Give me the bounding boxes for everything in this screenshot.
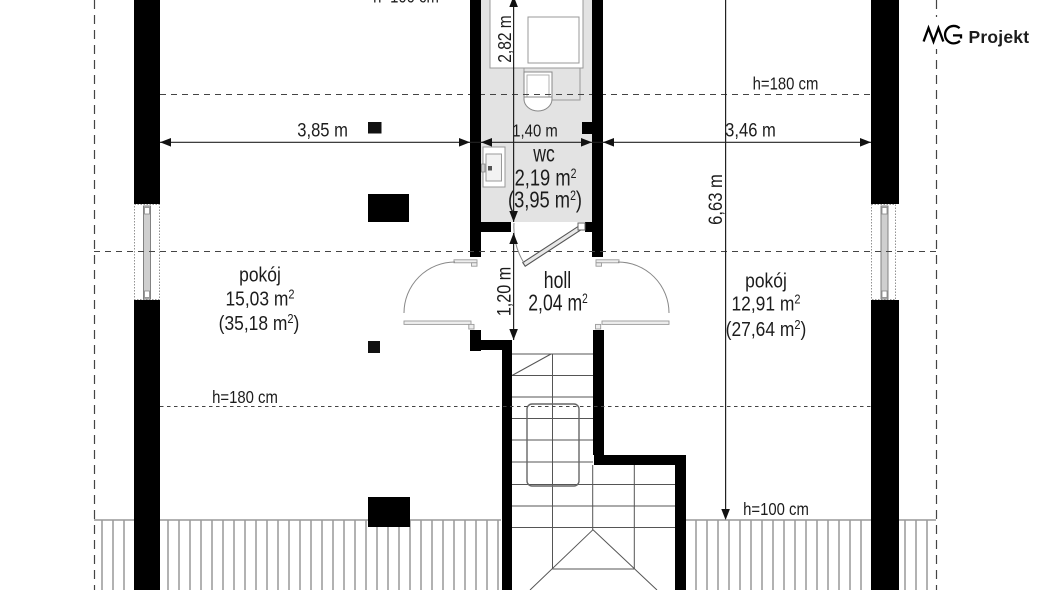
- svg-text:3,85 m: 3,85 m: [297, 119, 348, 141]
- svg-text:12,91 m2: 12,91 m2: [731, 292, 800, 316]
- svg-text:h=100 cm: h=100 cm: [373, 0, 439, 7]
- svg-text:3,46 m: 3,46 m: [725, 119, 776, 141]
- svg-text:(27,64 m2): (27,64 m2): [726, 317, 807, 341]
- svg-text:1,20 m: 1,20 m: [493, 267, 515, 316]
- svg-text:(35,18 m2): (35,18 m2): [219, 311, 300, 335]
- svg-text:2,04 m2: 2,04 m2: [528, 290, 588, 316]
- svg-text:h=100 cm: h=100 cm: [743, 500, 809, 519]
- svg-text:h=180 cm: h=180 cm: [753, 74, 819, 93]
- svg-text:6,63 m: 6,63 m: [705, 174, 727, 225]
- svg-text:Projekt: Projekt: [969, 27, 1030, 47]
- svg-text:pokój: pokój: [239, 264, 281, 287]
- svg-text:15,03 m2: 15,03 m2: [225, 286, 294, 310]
- svg-text:2,82 m: 2,82 m: [495, 15, 516, 62]
- svg-text:pokój: pokój: [745, 270, 787, 293]
- svg-text:h=180 cm: h=180 cm: [212, 388, 278, 407]
- svg-text:1,40 m: 1,40 m: [512, 121, 557, 140]
- svg-text:wc: wc: [532, 141, 554, 167]
